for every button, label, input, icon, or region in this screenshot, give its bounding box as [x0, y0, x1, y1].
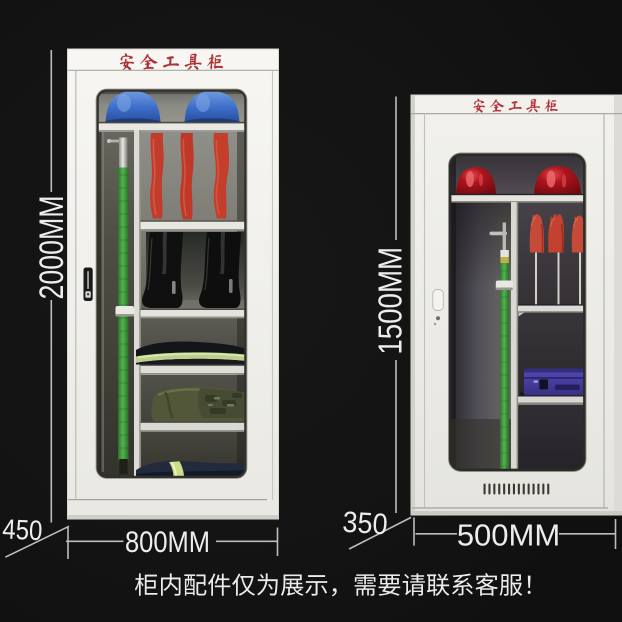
svg-text:450: 450 — [2, 513, 43, 547]
svg-text:2000MM: 2000MM — [33, 196, 71, 300]
svg-text:1500MM: 1500MM — [371, 247, 409, 355]
svg-text:500MM: 500MM — [457, 517, 560, 552]
svg-text:350: 350 — [342, 505, 389, 541]
svg-text:800MM: 800MM — [125, 525, 210, 558]
